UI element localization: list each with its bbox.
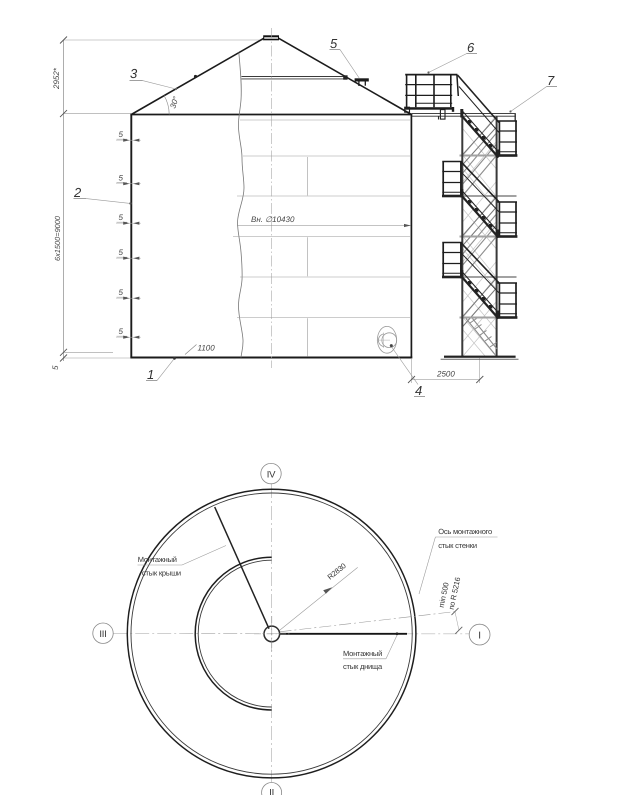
svg-text:1100: 1100 xyxy=(198,344,216,353)
svg-text:IV: IV xyxy=(267,470,276,481)
svg-text:2500: 2500 xyxy=(436,370,455,379)
svg-text:R2830: R2830 xyxy=(326,561,348,581)
svg-text:Ось монтажного: Ось монтажного xyxy=(438,527,492,536)
svg-text:30°: 30° xyxy=(168,95,181,110)
svg-text:4: 4 xyxy=(415,383,422,398)
svg-text:2952*: 2952* xyxy=(52,67,61,90)
svg-text:I: I xyxy=(478,631,481,642)
svg-text:3: 3 xyxy=(130,66,138,81)
svg-text:5: 5 xyxy=(119,248,124,257)
svg-text:5: 5 xyxy=(119,288,124,297)
svg-text:стык днища: стык днища xyxy=(343,662,383,671)
svg-text:7: 7 xyxy=(547,73,555,88)
svg-text:5: 5 xyxy=(119,213,124,222)
svg-text:II: II xyxy=(269,788,274,795)
svg-text:Монтажный: Монтажный xyxy=(343,649,382,658)
svg-text:5: 5 xyxy=(119,130,124,139)
svg-text:1: 1 xyxy=(147,367,154,382)
svg-text:5: 5 xyxy=(330,36,338,51)
svg-text:5: 5 xyxy=(51,365,60,370)
svg-text:2: 2 xyxy=(73,185,82,200)
svg-text:Монтажный: Монтажный xyxy=(138,555,177,564)
svg-text:по R 5216: по R 5216 xyxy=(447,577,463,611)
svg-text:III: III xyxy=(99,629,106,640)
svg-text:стык стенки: стык стенки xyxy=(438,541,477,550)
svg-text:Вн. ∅10430: Вн. ∅10430 xyxy=(251,215,295,224)
svg-text:6х1500=9000: 6х1500=9000 xyxy=(53,215,62,261)
svg-text:5: 5 xyxy=(119,174,124,183)
svg-text:стык крыши: стык крыши xyxy=(142,569,181,578)
svg-text:5: 5 xyxy=(119,327,124,336)
svg-text:6: 6 xyxy=(467,40,475,55)
